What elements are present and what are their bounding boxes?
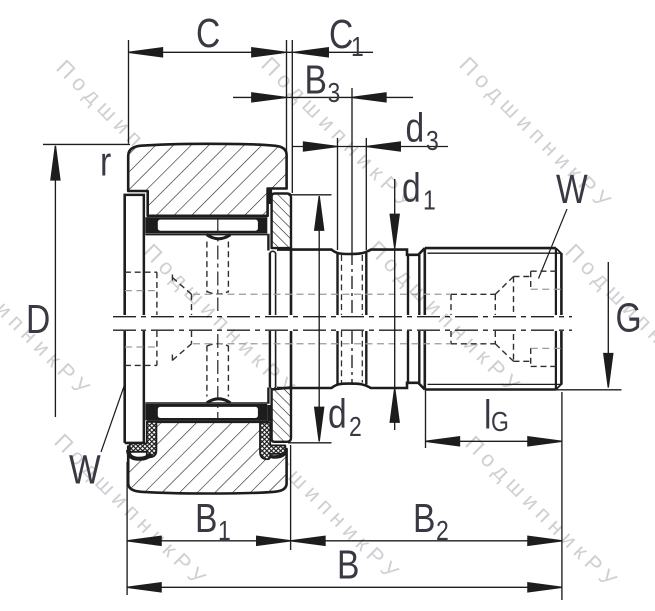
svg-text:B: B (195, 495, 217, 541)
svg-text:2: 2 (436, 516, 449, 547)
svg-text:C: C (329, 11, 353, 57)
svg-text:1: 1 (351, 32, 364, 63)
svg-text:d: d (406, 104, 425, 150)
svg-text:B: B (413, 495, 435, 541)
svg-text:3: 3 (328, 78, 341, 109)
svg-text:B: B (337, 541, 359, 587)
svg-text:C: C (196, 10, 220, 56)
svg-text:G: G (616, 294, 642, 340)
svg-text:3: 3 (426, 126, 439, 157)
svg-text:d: d (402, 164, 421, 210)
svg-text:G: G (491, 407, 509, 438)
svg-text:r: r (100, 138, 111, 184)
svg-text:1: 1 (218, 516, 231, 547)
svg-text:W: W (556, 166, 588, 212)
svg-text:D: D (26, 296, 50, 342)
svg-text:1: 1 (423, 185, 436, 216)
svg-text:2: 2 (349, 412, 362, 443)
svg-text:d: d (328, 390, 347, 436)
svg-text:B: B (305, 56, 327, 102)
svg-text:W: W (69, 446, 101, 492)
